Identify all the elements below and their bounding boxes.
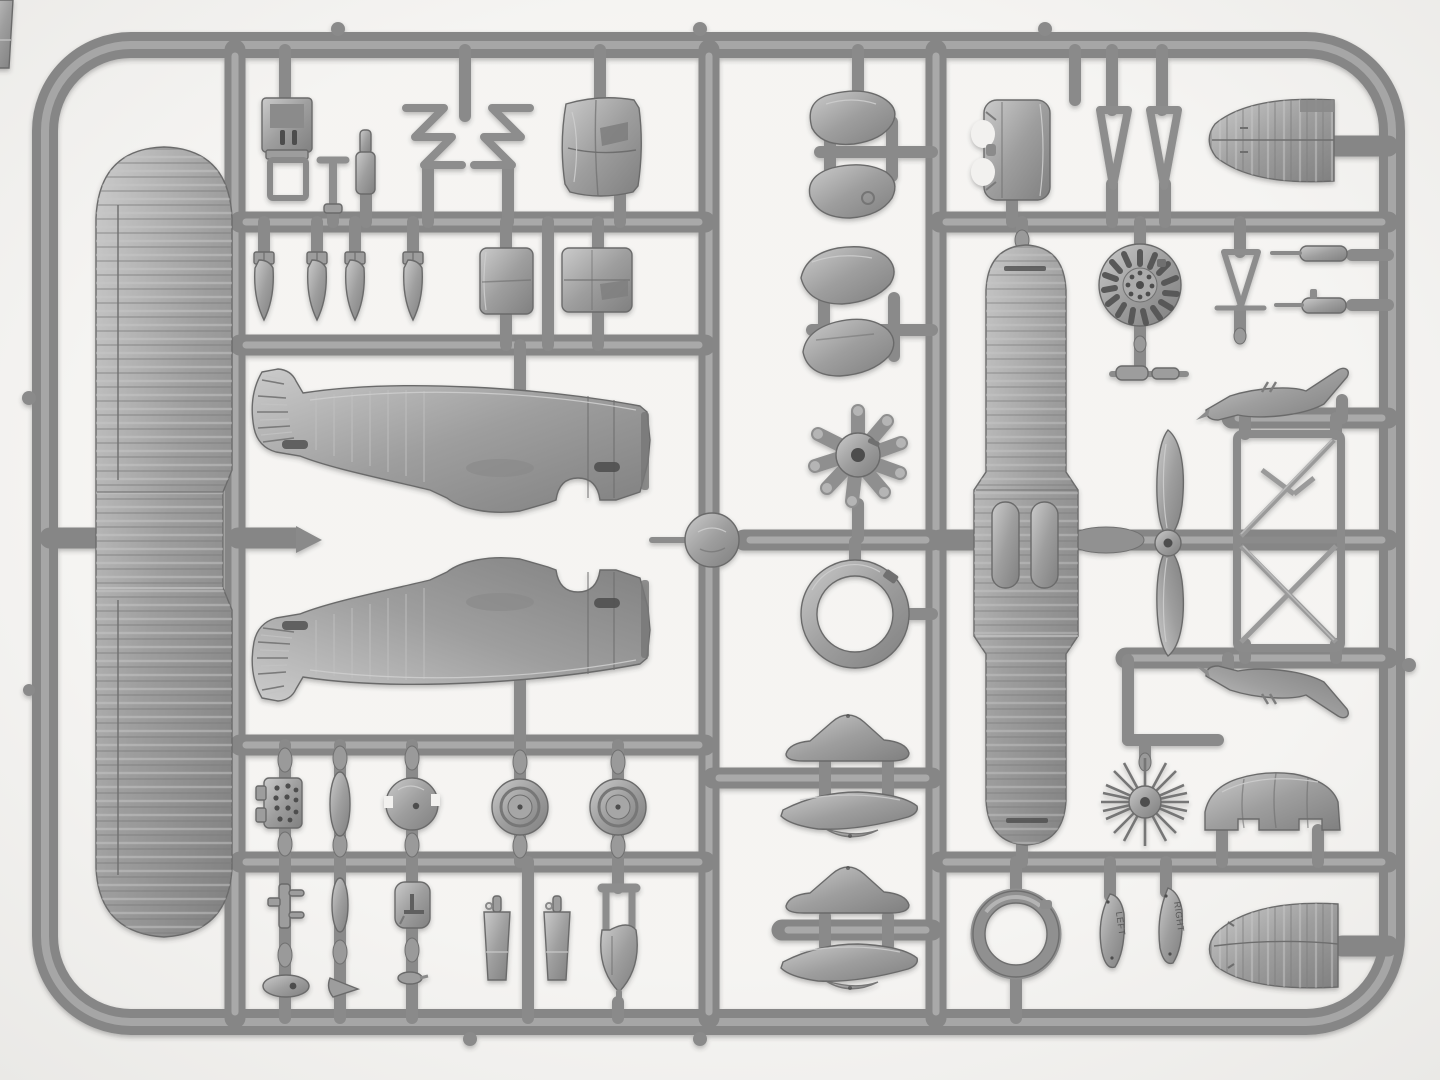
photo-of-model-kit-sprue: LEFT RIGHT: [0, 0, 1440, 1080]
lower-wing: [90, 140, 240, 940]
main-wheel-2: [590, 779, 646, 835]
data-pad-with-T-mark: [395, 882, 430, 928]
sprue-photo-svg: LEFT RIGHT: [0, 0, 1440, 1080]
cooling-louvre-disc: [1099, 244, 1181, 326]
fuel-tank-pod-lower: [332, 878, 348, 932]
main-wheel-1: [492, 779, 548, 835]
grab-handle-oval: [263, 975, 309, 997]
wire-spoked-wheel: [1101, 758, 1189, 846]
molding-boss: [685, 513, 739, 567]
fuel-tank-pod-upper: [330, 772, 350, 836]
cowling-side-panel: [562, 98, 641, 196]
two-blade-propeller: [1155, 430, 1183, 656]
one-piece-upper-wing: [968, 240, 1084, 850]
